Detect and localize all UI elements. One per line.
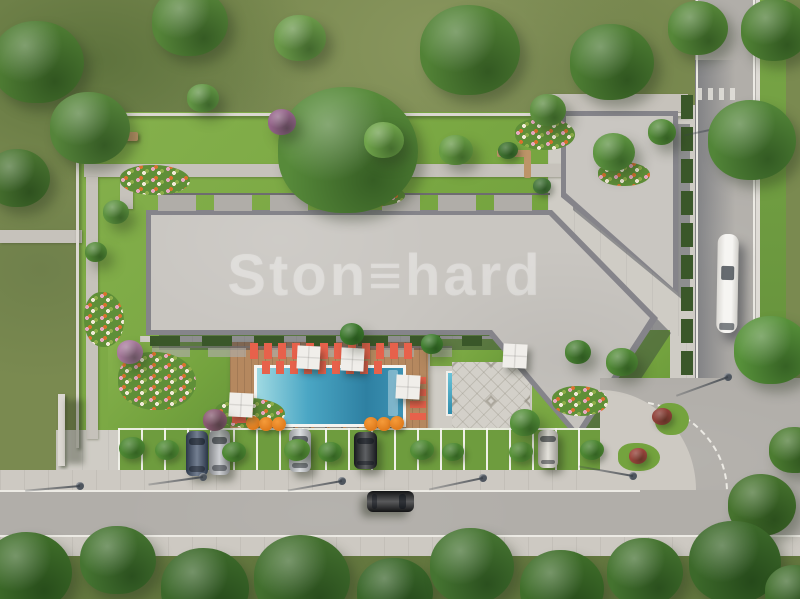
- road-bottom-edge-line-top: [0, 490, 640, 492]
- tree: [593, 133, 635, 171]
- square-umbrella: [340, 347, 364, 371]
- parked-car: [538, 430, 558, 468]
- shrub: [629, 448, 647, 463]
- flower-bed: [552, 386, 608, 416]
- square-umbrella: [228, 392, 253, 417]
- tree: [152, 0, 228, 56]
- tree: [668, 1, 728, 55]
- tree: [187, 84, 219, 113]
- tree: [421, 334, 443, 354]
- round-umbrella: [390, 416, 404, 430]
- sun-loungers: [262, 361, 384, 374]
- round-umbrella: [246, 416, 260, 430]
- tree: [606, 348, 638, 377]
- street-lamp: [629, 472, 637, 480]
- tree: [80, 526, 156, 594]
- city-bus: [716, 234, 739, 333]
- tree: [103, 200, 129, 223]
- street-lamp: [199, 473, 207, 481]
- square-umbrella: [502, 343, 527, 368]
- tree: [648, 119, 676, 144]
- hedge-along-road: [681, 95, 693, 415]
- flower-bed: [120, 165, 190, 195]
- wall-shadow: [66, 400, 84, 464]
- tree: [565, 340, 591, 363]
- tree: [85, 242, 107, 262]
- tree: [0, 149, 50, 207]
- flower-bed: [84, 292, 124, 347]
- shrub: [498, 142, 518, 159]
- shrub: [652, 408, 672, 425]
- road-right-edge-line-west: [696, 0, 698, 440]
- path-north-entry: [0, 230, 82, 243]
- round-umbrella: [272, 417, 286, 431]
- tree: [510, 409, 540, 436]
- tree: [570, 24, 654, 100]
- street-lamp: [76, 482, 84, 490]
- tree: [430, 528, 514, 599]
- round-umbrella: [364, 417, 378, 431]
- square-umbrella: [395, 374, 420, 399]
- tree: [268, 109, 296, 134]
- tree: [340, 323, 364, 345]
- round-umbrella: [377, 417, 391, 431]
- sun-loungers: [250, 343, 418, 359]
- round-umbrella: [259, 417, 273, 431]
- parked-car: [354, 432, 377, 469]
- parked-car: [186, 431, 208, 476]
- square-umbrella: [296, 345, 320, 369]
- tree: [274, 15, 326, 62]
- tree: [364, 122, 404, 158]
- tree: [50, 92, 130, 164]
- tree: [420, 5, 520, 95]
- tree: [0, 21, 84, 104]
- shrub: [533, 178, 551, 193]
- street-lamp: [479, 474, 487, 482]
- tree: [530, 94, 566, 126]
- road-marking: [697, 88, 737, 100]
- watermark-text: Ston≡hard: [180, 242, 590, 308]
- parked-car: [367, 491, 414, 512]
- tree: [734, 316, 800, 384]
- aerial-render-canvas: Ston≡hard: [0, 0, 800, 599]
- tree: [708, 100, 796, 179]
- sidewalk-north-of-road: [0, 470, 660, 490]
- tree: [117, 340, 143, 363]
- boundary-wall-southwest: [58, 394, 65, 466]
- tree: [741, 0, 800, 61]
- tree: [439, 135, 473, 166]
- street-lamp: [338, 477, 346, 485]
- tree: [203, 409, 227, 431]
- street-lamp: [724, 373, 732, 381]
